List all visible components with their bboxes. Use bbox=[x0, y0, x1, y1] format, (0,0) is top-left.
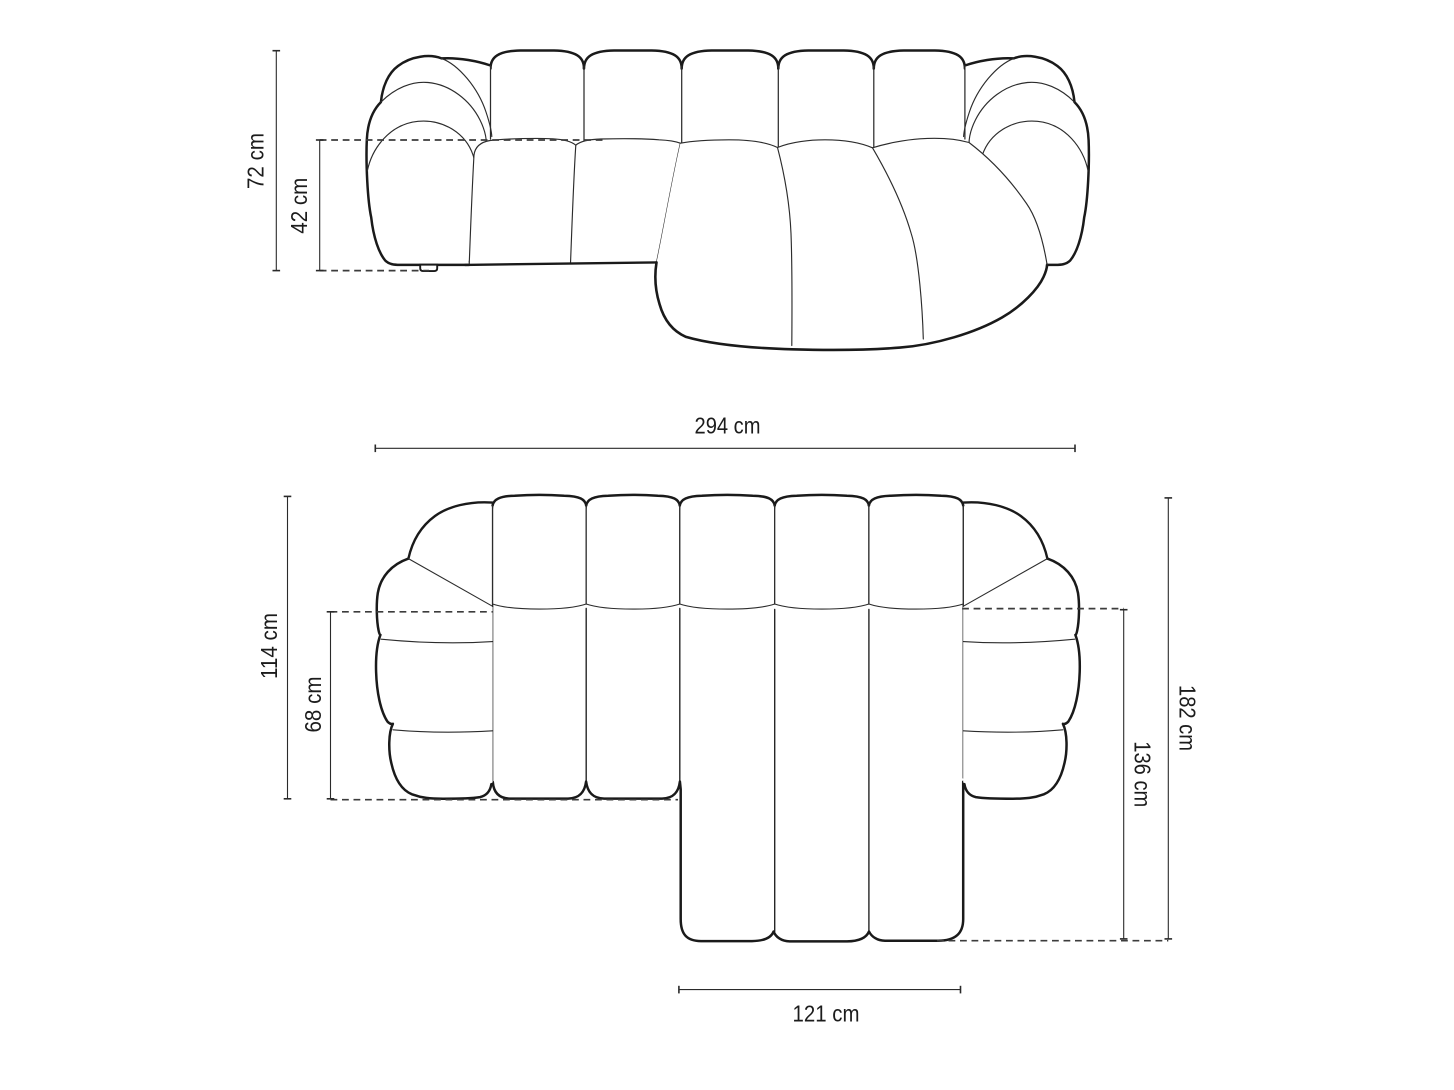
svg-text:72 cm: 72 cm bbox=[243, 133, 269, 189]
svg-text:294 cm: 294 cm bbox=[695, 413, 761, 439]
svg-text:121 cm: 121 cm bbox=[793, 1001, 860, 1027]
svg-text:182 cm: 182 cm bbox=[1175, 685, 1201, 751]
svg-text:136 cm: 136 cm bbox=[1130, 741, 1156, 807]
svg-text:68 cm: 68 cm bbox=[300, 677, 326, 733]
svg-text:42 cm: 42 cm bbox=[286, 178, 312, 234]
svg-text:114 cm: 114 cm bbox=[256, 613, 282, 679]
